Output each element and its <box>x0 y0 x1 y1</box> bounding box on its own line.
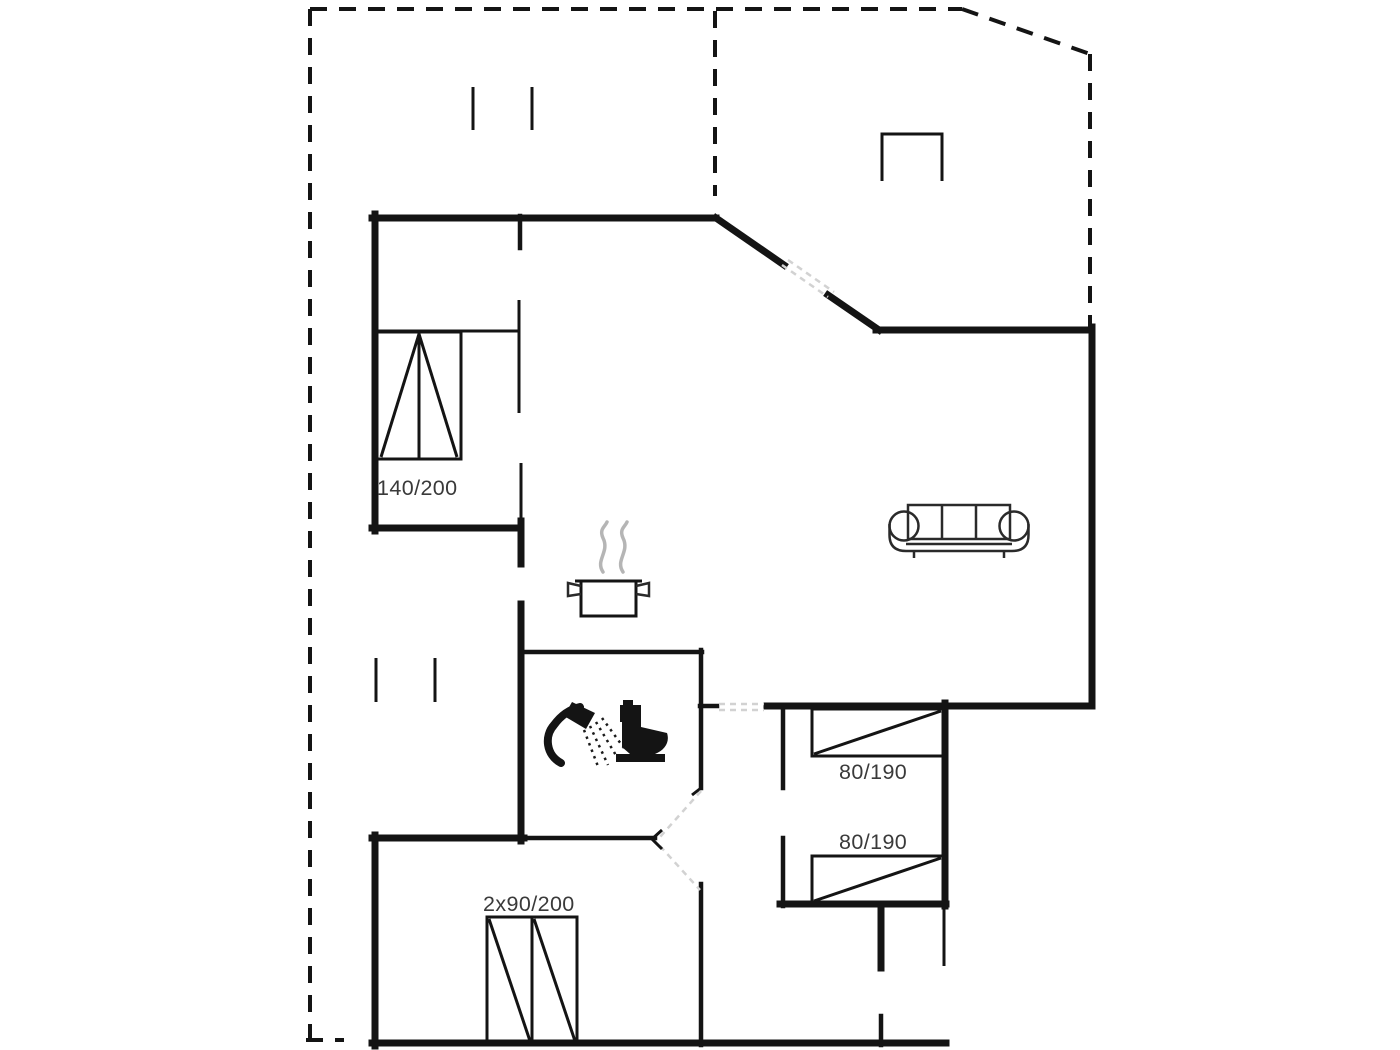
door-openings <box>652 260 834 890</box>
shower-icon <box>548 702 624 769</box>
shower-spray <box>602 718 624 748</box>
bed-size-label: 2x90/200 <box>483 892 575 916</box>
bed-size-label: 140/200 <box>377 476 458 500</box>
grill-icon <box>882 134 942 181</box>
bed-duvet-line <box>814 858 941 901</box>
bedroom-door-swing <box>660 846 700 890</box>
toilet-tank <box>620 705 641 722</box>
bed-duvet-line <box>419 334 457 457</box>
bed-size-label: 80/190 <box>839 760 907 784</box>
sofa-armrest <box>1000 512 1029 541</box>
terrace-door-swing <box>788 260 834 292</box>
bed-duvet-line <box>534 919 575 1041</box>
pot-handle <box>568 583 581 596</box>
bed-duvet-line <box>381 334 419 457</box>
single-bed-icon <box>812 709 943 756</box>
double-bed-icon <box>377 332 461 459</box>
pot-handle <box>636 583 649 596</box>
bed-size-label: 80/190 <box>839 830 907 854</box>
toilet-icon <box>616 700 668 762</box>
bed-duvet-line <box>814 711 941 754</box>
steam-icon <box>601 522 607 572</box>
shower-spray <box>584 730 599 769</box>
sofa-armrest <box>890 512 919 541</box>
cooking-pot-icon <box>568 522 649 616</box>
exterior-walls <box>372 214 1092 1046</box>
steam-icon <box>621 522 627 572</box>
shower-spray <box>596 722 617 757</box>
toilet-bowl <box>622 721 668 754</box>
terrace-edge-top-right-diagonal <box>962 9 1090 54</box>
single-bed-icon <box>812 856 943 903</box>
bath-door-swing <box>660 791 701 837</box>
terrace-door-swing <box>782 265 828 297</box>
sofa-icon <box>890 505 1029 558</box>
shower-spray <box>590 726 608 765</box>
wall-diagonal-upper <box>716 218 784 265</box>
floor-plan-svg: 140/200 80/190 80/190 2x90/200 <box>0 0 1400 1050</box>
shower-head <box>564 702 595 729</box>
sofa-base <box>890 524 1029 551</box>
floor-plan: 140/200 80/190 80/190 2x90/200 <box>0 0 1400 1050</box>
wall-diagonal-lower <box>828 295 879 330</box>
pot-body <box>581 581 636 616</box>
twin-bed-icon <box>487 917 577 1043</box>
sofa-seat <box>908 505 1010 539</box>
bed-duvet-line <box>489 919 530 1041</box>
toilet-base <box>616 754 665 762</box>
